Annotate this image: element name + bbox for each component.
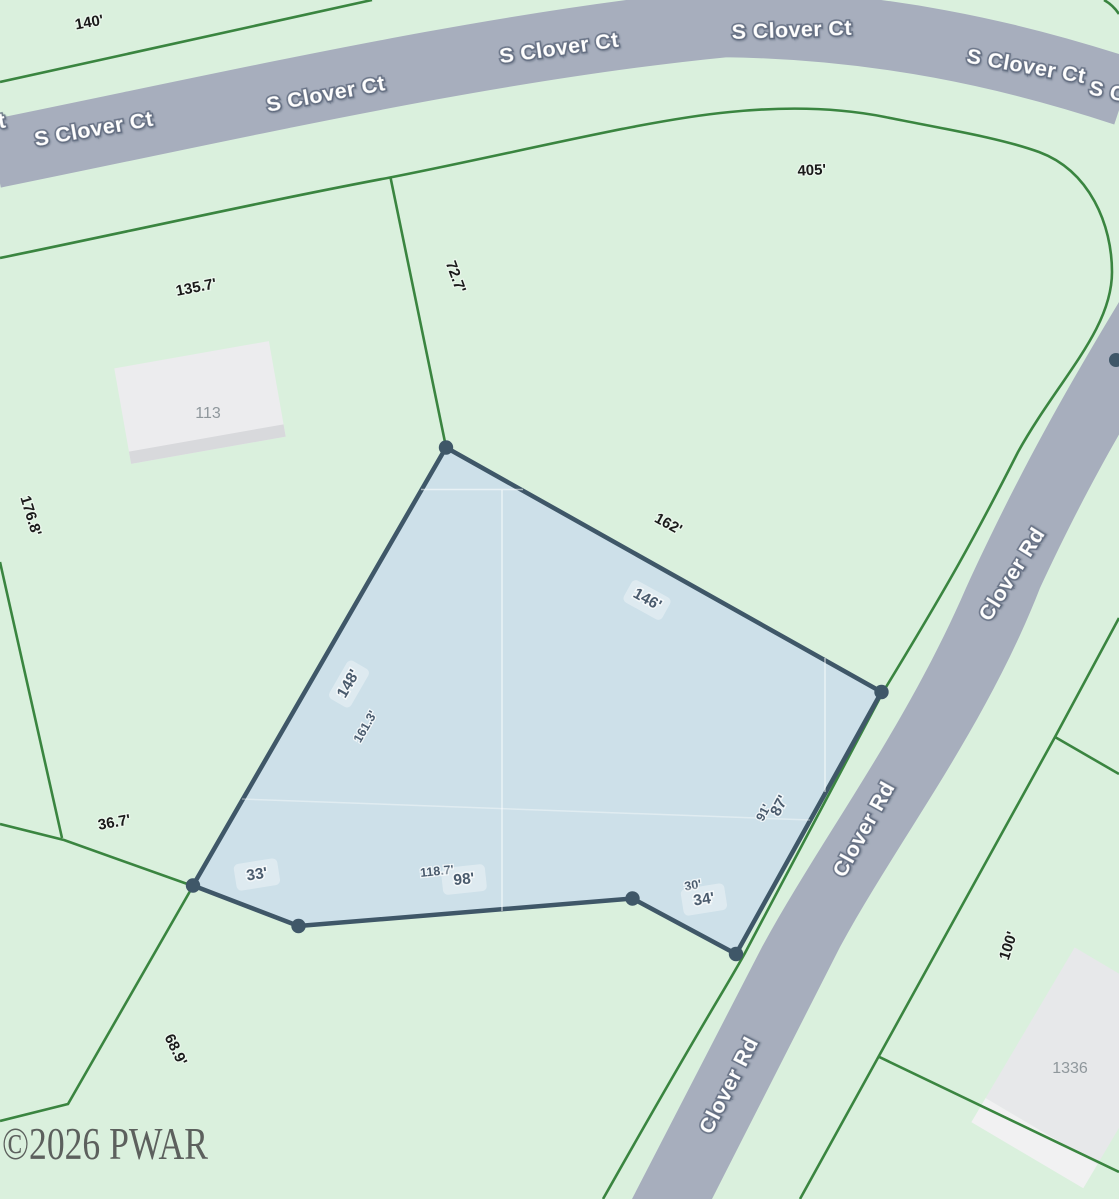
svg-text:©2026 PWAR: ©2026 PWAR [2, 1119, 208, 1169]
svg-text:98': 98' [453, 870, 476, 889]
svg-text:405': 405' [797, 161, 826, 179]
svg-text:1336: 1336 [1052, 1060, 1088, 1077]
svg-text:33': 33' [245, 865, 268, 885]
svg-text:34': 34' [692, 890, 715, 910]
svg-text:113: 113 [195, 405, 221, 422]
svg-text:S Clover Ct: S Clover Ct [731, 16, 852, 44]
